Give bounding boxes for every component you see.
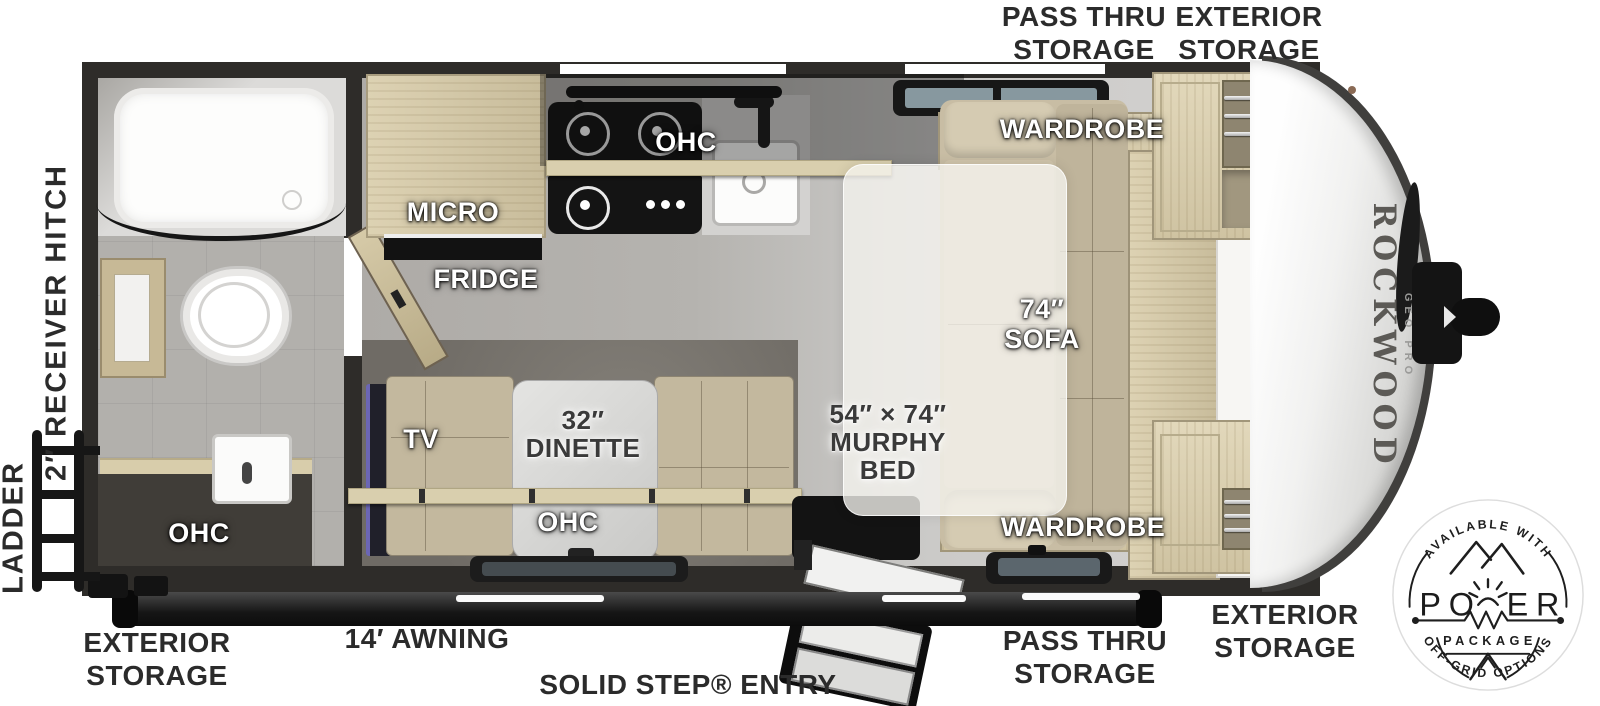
- hitch-jack-handle: [1450, 298, 1500, 336]
- awning-stripe: [456, 595, 604, 602]
- badge-power-right: ER: [1507, 587, 1568, 623]
- fridge-front: [384, 234, 542, 260]
- awning-bracket: [134, 576, 168, 596]
- label-kitchen-ohc: OHC: [606, 128, 766, 157]
- tv-wall: [344, 356, 362, 566]
- dinette-ohc-shelf: [348, 488, 802, 504]
- awning-tube: [116, 592, 1152, 626]
- badge-power-left: PO: [1419, 587, 1481, 623]
- bath-divider-wall: [344, 62, 362, 238]
- label-sofa: 74″SOFA: [962, 294, 1122, 354]
- callout-ladder: LADDER: [0, 448, 31, 608]
- label-tv: TV: [391, 425, 451, 454]
- callout-solid-step: SOLID STEP® ENTRY: [538, 668, 838, 701]
- marker-light: [1348, 86, 1356, 94]
- power-package-badge: AVAILABLE WITH PO ER PACKAGE OFF-GRID OP…: [1390, 495, 1586, 695]
- label-wardrobe-top: WARDROBE: [962, 115, 1202, 144]
- label-bath-ohc: OHC: [119, 519, 279, 548]
- kitchen-window-band: [560, 64, 786, 74]
- hatch-knob: [1028, 545, 1046, 555]
- vanity-faucet: [242, 462, 252, 484]
- awning-stripe: [1022, 593, 1140, 600]
- callout-exterior-top: EXTERIORSTORAGE: [1119, 0, 1379, 66]
- label-fridge: FRIDGE: [406, 265, 566, 294]
- floorplan: GEO PRO ROCKWOOD OHC MICRO FRIDGE WARDRO…: [0, 0, 1600, 706]
- entry-hinge: [794, 540, 812, 570]
- label-murphy-bed: 54″ × 74″MURPHYBED: [788, 400, 988, 484]
- toilet-seat-ring: [198, 282, 270, 348]
- awning-stripe: [882, 595, 966, 602]
- door-handle: [390, 289, 406, 309]
- control-dot: [646, 200, 655, 209]
- hitch-chevron: [1444, 306, 1456, 328]
- mirror: [114, 274, 150, 362]
- burner-dot: [580, 200, 590, 210]
- control-dot: [676, 200, 685, 209]
- callout-exterior-bottom-right: EXTERIORSTORAGE: [1155, 598, 1415, 664]
- label-micro: MICRO: [373, 198, 533, 227]
- callout-exterior-bottom-left: EXTERIORSTORAGE: [27, 626, 287, 692]
- brand-name: ROCKWOOD: [1366, 186, 1402, 486]
- label-dinette: 32″DINETTE: [493, 406, 673, 462]
- label-dinette-ohc: OHC: [488, 508, 648, 537]
- kitchen-shelf-edge: [546, 160, 892, 176]
- callout-awning: 14′ AWNING: [297, 622, 557, 655]
- vanity-sink: [212, 434, 292, 504]
- control-dot: [661, 200, 670, 209]
- dinette-window: [470, 556, 688, 582]
- dinette-bench-right: [654, 376, 794, 556]
- towel-bar-knob: [574, 100, 584, 110]
- badge-package: PACKAGE: [1443, 633, 1537, 648]
- pass-thru-hatch: [986, 552, 1112, 584]
- label-wardrobe-bottom: WARDROBE: [963, 513, 1203, 542]
- brand-decal: GEO PRO ROCKWOOD: [1360, 186, 1414, 486]
- towel-bar: [566, 86, 782, 98]
- left-wall: [82, 62, 98, 596]
- callout-receiver-hitch: 2″ RECEIVER HITCH: [41, 113, 74, 533]
